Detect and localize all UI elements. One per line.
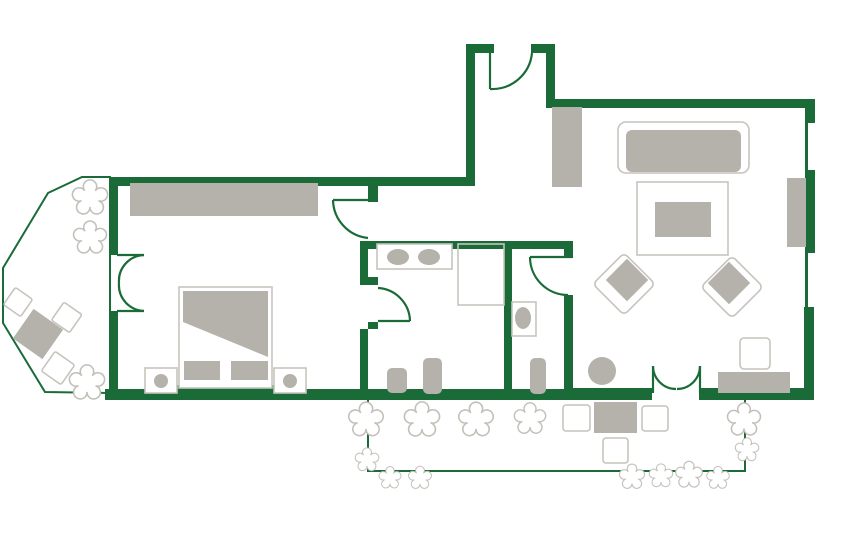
wall-bedroom-door-stub (368, 177, 378, 202)
wall-bath-jamb-lower (368, 322, 378, 329)
wall-bath-left-upper (360, 241, 368, 285)
living-room (588, 122, 806, 393)
entry-closet (552, 107, 582, 187)
pillow (231, 361, 268, 380)
toilet (512, 302, 536, 336)
wall-entry-top-left (466, 44, 494, 53)
sink-icon (418, 249, 440, 265)
plant-icon (514, 403, 545, 433)
wall-wc-top (504, 241, 573, 249)
plant-icon (649, 464, 673, 487)
plant-icon (735, 438, 759, 461)
radiator (387, 368, 407, 393)
plant-icon (349, 402, 384, 435)
wall-wc-left (504, 241, 512, 400)
terrace (349, 400, 761, 488)
plant-icon (69, 365, 104, 399)
wall-bedroom-left-upper (110, 177, 118, 255)
wall-console (787, 178, 806, 247)
plant-icon (619, 464, 644, 488)
balcony (3, 177, 110, 399)
armchair (701, 256, 763, 318)
coffee-table (637, 182, 728, 255)
plant-icon (409, 466, 432, 488)
bathroom (377, 244, 504, 394)
balcony-chair (3, 287, 32, 316)
terrace-french-door (653, 366, 700, 393)
plant-icon (355, 448, 379, 471)
floor-plan-canvas (0, 0, 856, 550)
terrace-table (603, 438, 628, 463)
wall-entry-left (466, 44, 475, 186)
lamp-icon (283, 374, 297, 388)
desk (718, 372, 790, 393)
plant-icon (74, 221, 107, 253)
plant-icon (459, 402, 494, 435)
wall-bedroom-left-lower (110, 311, 118, 393)
side-table (588, 357, 616, 385)
double-vanity (377, 244, 452, 269)
wc (512, 302, 546, 394)
wardrobe (130, 183, 318, 216)
sofa (618, 122, 749, 173)
terrace-dining-table (594, 402, 637, 433)
window-right-lower (805, 253, 808, 307)
sink-icon (387, 249, 409, 265)
nightstand (274, 368, 306, 393)
bedroom-door (333, 200, 372, 238)
floor-plan-drawing (0, 0, 856, 550)
radiator (423, 358, 442, 394)
desk-chair (740, 338, 770, 369)
terrace-table (642, 406, 668, 431)
wall-right-pier (805, 170, 815, 253)
lamp-icon (154, 374, 168, 388)
plant-icon (707, 466, 730, 488)
entry-door (490, 53, 532, 89)
radiator (530, 358, 546, 394)
wall-entry-right (546, 44, 555, 108)
plant-icon (379, 467, 401, 488)
plant-icon (728, 403, 761, 435)
entry-hall (552, 107, 582, 187)
armchair (593, 253, 655, 315)
window-right-upper (805, 123, 808, 170)
bedroom (130, 183, 318, 393)
wall-right-bottom (804, 307, 814, 400)
wall-wc-right (564, 295, 573, 400)
wc-door (530, 257, 572, 295)
plant-icon (676, 461, 703, 487)
nightstand (145, 368, 177, 393)
bathroom-door (378, 288, 410, 321)
wall-bath-jamb-upper (368, 277, 378, 285)
pillow (184, 361, 220, 380)
wall-right-corner (805, 99, 815, 123)
wall-living-top (546, 99, 815, 108)
balcony-french-door (117, 255, 144, 311)
shower (458, 244, 504, 305)
terrace-table (563, 405, 590, 431)
plant-icon (72, 180, 107, 214)
plant-icon (404, 402, 439, 436)
